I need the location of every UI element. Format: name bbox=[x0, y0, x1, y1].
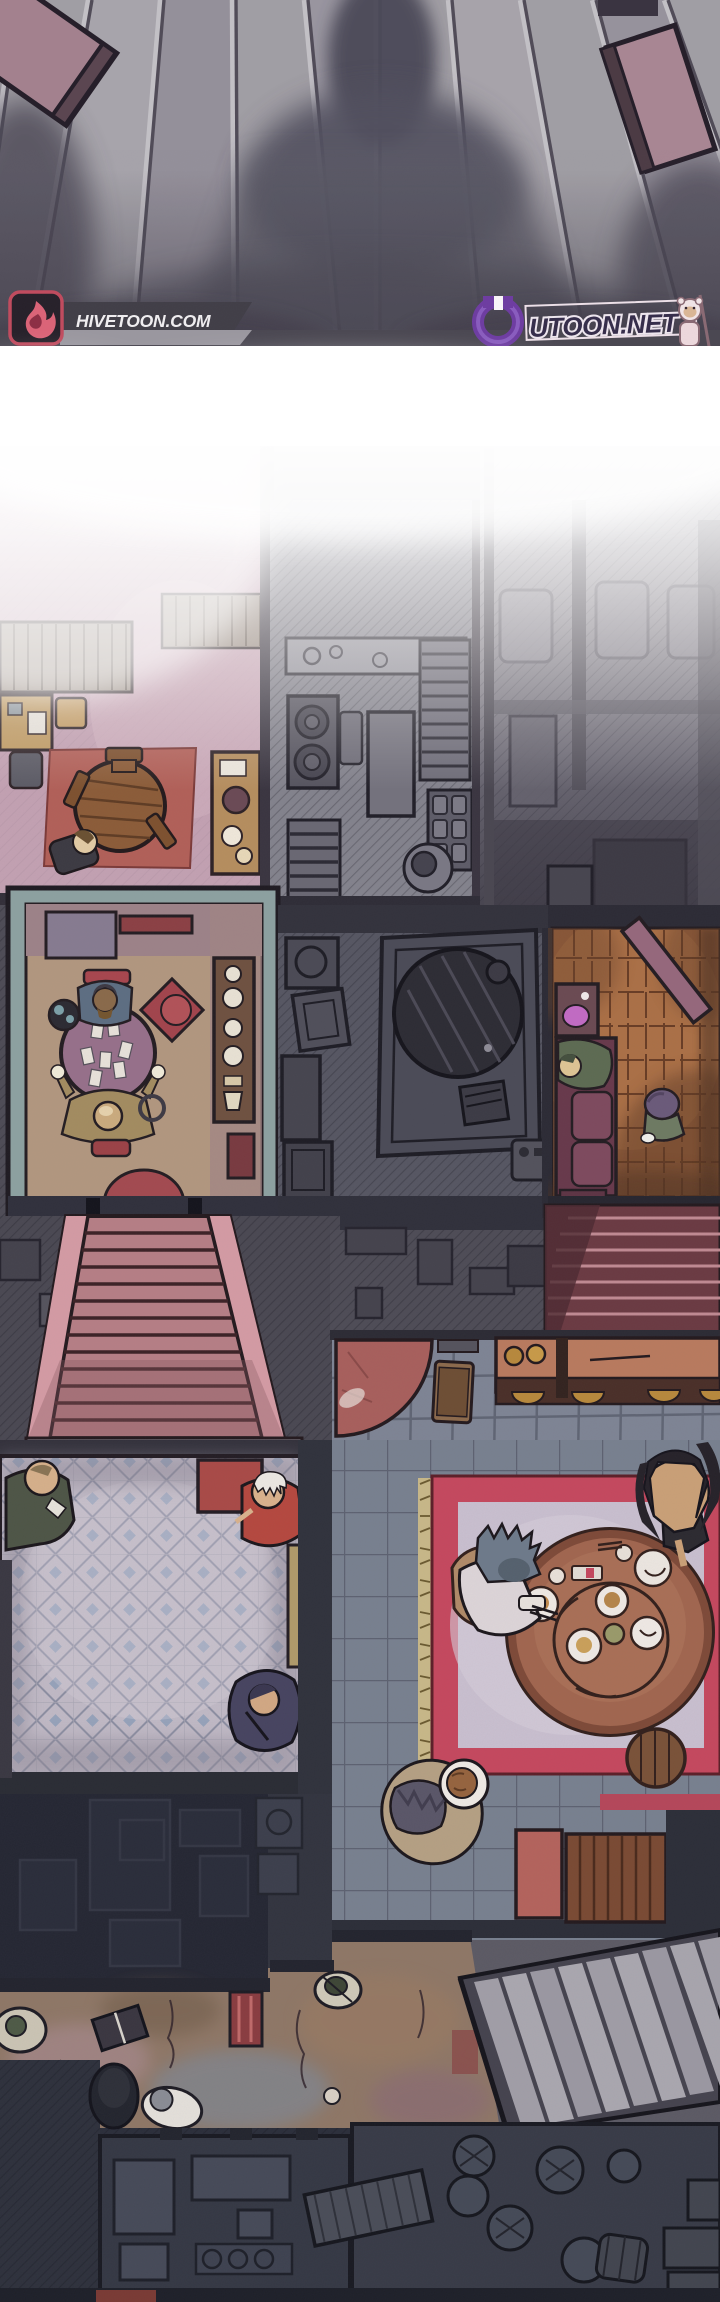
svg-text:UTOON.NET: UTOON.NET bbox=[529, 308, 681, 343]
svg-text:HIVETOON.COM: HIVETOON.COM bbox=[76, 311, 211, 331]
